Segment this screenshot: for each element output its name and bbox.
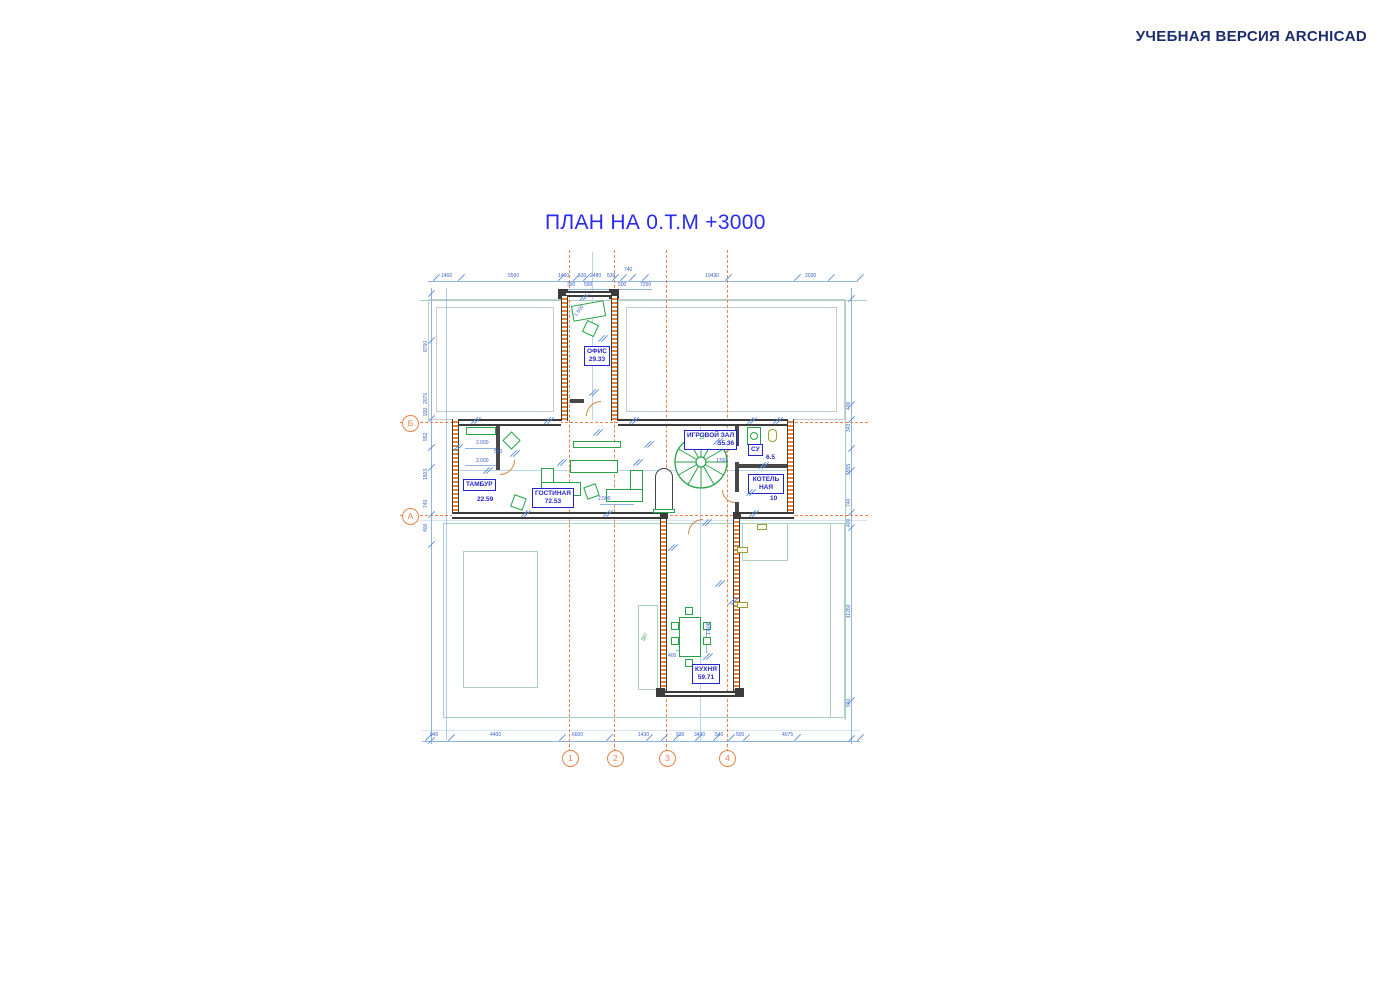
dimension-text: 500: [494, 450, 502, 455]
dimension-text: 1700: [716, 459, 727, 464]
terrace-outline: [463, 551, 538, 688]
room-area: 29.33: [587, 356, 607, 364]
axis-bubble-2: 2: [607, 750, 624, 767]
dimension-text: 552: [424, 433, 429, 441]
dimension-tick: [828, 274, 835, 281]
dimension-text: 2030: [805, 274, 816, 279]
wall-segment: [611, 296, 618, 421]
room-name: ОФИС: [587, 348, 607, 356]
guide-line: [420, 520, 867, 521]
washbasin-bowl: [750, 432, 758, 440]
toilet: [768, 429, 777, 442]
axis-bubble-b: Б: [402, 415, 419, 432]
dimension-tick: [448, 734, 455, 741]
dimension-tick: [794, 274, 801, 281]
dimension-text: 390: [567, 283, 575, 288]
dimension-text: 2075: [424, 393, 429, 404]
wall-segment: [452, 512, 661, 519]
wall-lamp: [737, 547, 748, 553]
room-name: ГОСТИНАЯ: [535, 490, 571, 498]
furniture-sofa: [606, 489, 643, 502]
room-area: 6.5: [766, 454, 775, 461]
dimension-text: 590: [584, 283, 592, 288]
dimension-text: 740: [424, 500, 429, 508]
room-area: 10: [770, 495, 777, 502]
wall-cap: [735, 688, 744, 697]
room-area: 59.71: [695, 674, 717, 682]
wall-cap: [660, 512, 668, 519]
furniture-table: [570, 460, 618, 473]
furniture-chair: [671, 637, 679, 645]
terrace-line: [420, 300, 867, 301]
dimension-text: 500: [618, 283, 626, 288]
axis-bubble-3: 3: [659, 750, 676, 767]
wall-segment: [660, 519, 667, 693]
lower-level-outline: [436, 307, 554, 412]
dimension-text: 4400: [490, 733, 501, 738]
furniture-dining-table: [679, 617, 701, 657]
guide-line: [422, 730, 860, 731]
terrace-line: [830, 523, 831, 718]
dimension-text: 1460: [441, 274, 452, 279]
furniture-chair: [582, 320, 599, 337]
room-name: ТАМБУР: [466, 481, 493, 489]
furniture-piano-bench: [653, 509, 675, 513]
wall-segment: [561, 296, 568, 421]
dimension-text: 11260: [847, 604, 852, 618]
lower-level-outline: [626, 307, 837, 412]
furniture-sideboard: [573, 441, 621, 448]
wall-segment: [618, 419, 794, 426]
dimension-line: [465, 448, 497, 449]
dimension-text: 6600: [572, 733, 583, 738]
room-label-kitchen: КУХНЯ 59.71: [692, 664, 720, 684]
room-area: 55.36: [687, 440, 734, 448]
furniture-bench: [466, 427, 496, 435]
dimension-line: [600, 504, 634, 505]
furniture-armchair: [502, 431, 520, 449]
wall-lamp: [737, 602, 748, 608]
dimension-text: 343: [847, 424, 852, 432]
axis-bubble-4: 4: [719, 750, 736, 767]
room-label-wc: СУ: [748, 444, 763, 456]
dimension-text: 400: [424, 524, 429, 532]
dimension-text: 5500: [508, 274, 519, 279]
wall-segment: [787, 419, 794, 519]
dimension-tick: [642, 274, 649, 281]
room-name: ИГРОВОЙ ЗАЛ: [687, 432, 734, 440]
room-area: 72.53: [535, 498, 571, 506]
dimension-text: 930: [424, 408, 429, 416]
dimension-tick: [458, 274, 465, 281]
wall-cap: [656, 688, 665, 697]
furniture-piano: [655, 468, 673, 511]
wall-cap: [733, 512, 741, 519]
dimension-line: [446, 288, 447, 740]
dimension-tick: [620, 274, 627, 281]
wall-segment: [452, 419, 459, 519]
dimension-text: 2.000: [476, 459, 489, 464]
terrace-outline: [638, 605, 658, 690]
terrace-line: [845, 300, 846, 720]
door-arc: [688, 519, 703, 534]
dimension-line: [431, 288, 432, 744]
dimension-tick: [629, 274, 636, 281]
room-name: КУХНЯ: [695, 666, 717, 674]
dimension-text: 740: [624, 268, 632, 273]
dimension-tick: [857, 274, 864, 281]
dimension-tick: [794, 734, 801, 741]
room-label-tambour: ТАМБУР: [463, 479, 496, 491]
dimension-tick: [433, 274, 440, 281]
dimension-line: [851, 288, 852, 744]
room-area: 22.59: [477, 496, 493, 503]
dimension-tick: [857, 734, 864, 741]
dimension-text: 2.500: [598, 497, 611, 502]
dimension-line: [560, 289, 652, 290]
room-label-office: ОФИС 29.33: [584, 346, 610, 366]
dimension-tick: [728, 734, 735, 741]
door-arc: [722, 490, 735, 503]
dimension-tick: [606, 734, 613, 741]
wall-lamp: [757, 524, 767, 530]
room-name: СУ: [751, 446, 760, 454]
wall-segment: [660, 691, 740, 697]
partition: [735, 502, 739, 512]
dimension-text: 15: [699, 436, 705, 441]
furniture-chair: [685, 607, 693, 615]
axis-bubble-a: А: [402, 508, 419, 525]
furniture-armchair: [510, 494, 527, 511]
dimension-tick: [559, 734, 566, 741]
dimension-text: 2480: [590, 274, 601, 279]
partition: [570, 399, 584, 403]
dimension-text: 500: [736, 733, 744, 738]
door-arc: [586, 401, 601, 416]
room-label-gamehall: ИГРОВОЙ ЗАЛ 55.36: [684, 430, 737, 450]
door-arc: [500, 460, 515, 475]
dimension-text: 7250: [640, 283, 651, 288]
furniture-chair: [703, 637, 711, 645]
dimension-text: 4075: [782, 733, 793, 738]
axis-bubble-1: 1: [562, 750, 579, 767]
dimension-text: 10430: [705, 274, 719, 279]
furniture-chair: [671, 622, 679, 630]
dimension-text: 1.606: [707, 622, 712, 635]
room-label-living: ГОСТИНАЯ 72.53: [532, 488, 574, 508]
dimension-text: 400: [668, 654, 676, 659]
floor-plan: ОФИС 29.33 ТАМБУР 22.59 ГОСТИНАЯ 72.53 И…: [0, 0, 1400, 990]
archicad-canvas: УЧЕБНАЯ ВЕРСИЯ ARCHICAD ПЛАН НА 0.Т.М +3…: [0, 0, 1400, 990]
dimension-text: 2.000: [476, 441, 489, 446]
dimension-text: 740: [847, 499, 852, 507]
